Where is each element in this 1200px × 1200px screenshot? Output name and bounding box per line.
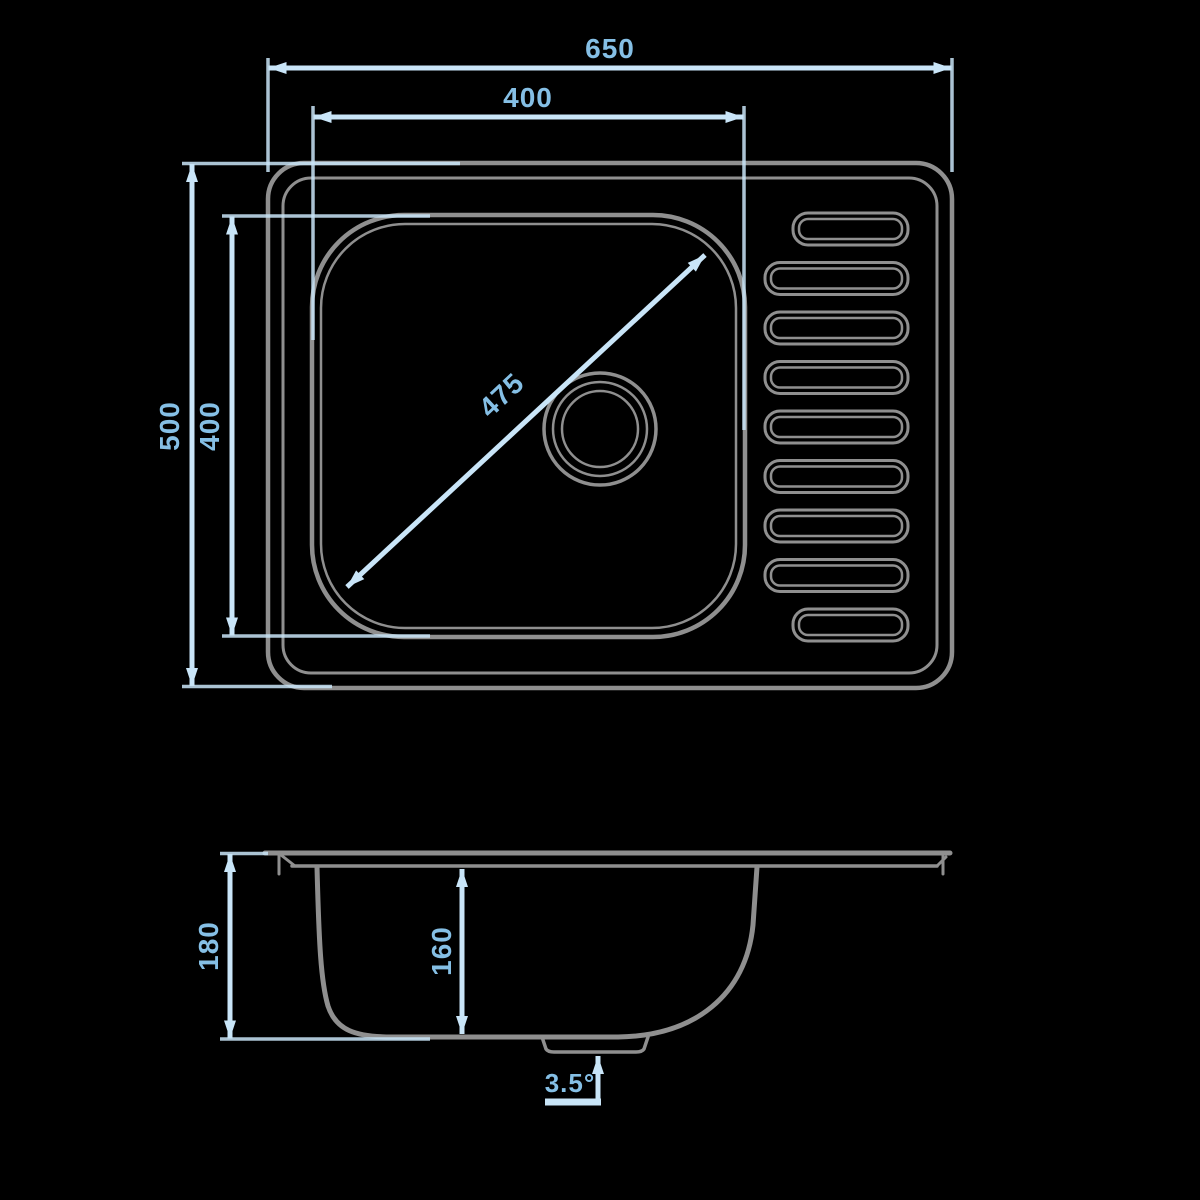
top-view: 650 400 500 400 475 (154, 33, 952, 688)
drainboard-slot-inner (771, 566, 902, 586)
drainboard-slot-inner (771, 516, 902, 536)
dim-label-650: 650 (585, 33, 635, 64)
dim-bowl-inner-depth: 160 (426, 869, 462, 1034)
dim-label-400-depth: 400 (194, 401, 225, 451)
dim-label-475: 475 (473, 367, 531, 424)
drainboard-slot-inner (771, 467, 902, 487)
dim-bowl-diagonal: 475 (347, 255, 705, 587)
drainboard-slot-inner (799, 219, 902, 239)
bowl-profile (317, 867, 757, 1037)
dim-label-160: 160 (426, 926, 457, 976)
sink-technical-drawing: 650 400 500 400 475 (0, 0, 1200, 1200)
drainboard-slot-inner (771, 318, 902, 338)
sink-rim-inner-outline (283, 178, 937, 673)
section-view: 180 160 3.5° (193, 853, 950, 1104)
drainboard-slot-inner (771, 368, 902, 388)
drainboard-slot-inner (771, 417, 902, 437)
dimension-line (347, 255, 705, 587)
angle-label: 3.5° (545, 1068, 596, 1098)
drainboard-slots (765, 213, 908, 641)
drain-middle-ring (553, 382, 647, 476)
dim-label-400-width: 400 (503, 82, 553, 113)
drawing-canvas: 650 400 500 400 475 (0, 0, 1200, 1200)
drainboard-slot-inner (771, 269, 902, 289)
dim-label-500: 500 (154, 401, 185, 451)
drainboard-slot-inner (799, 615, 902, 635)
drain-inner-ring (562, 391, 638, 467)
dim-overall-width: 650 (268, 33, 952, 172)
dim-label-180: 180 (193, 921, 224, 971)
dim-bowl-width: 400 (313, 82, 744, 430)
dim-overall-height: 180 (193, 854, 430, 1040)
rim-left-lip-fold (281, 855, 295, 866)
angle-callout: 3.5° (545, 1056, 601, 1104)
